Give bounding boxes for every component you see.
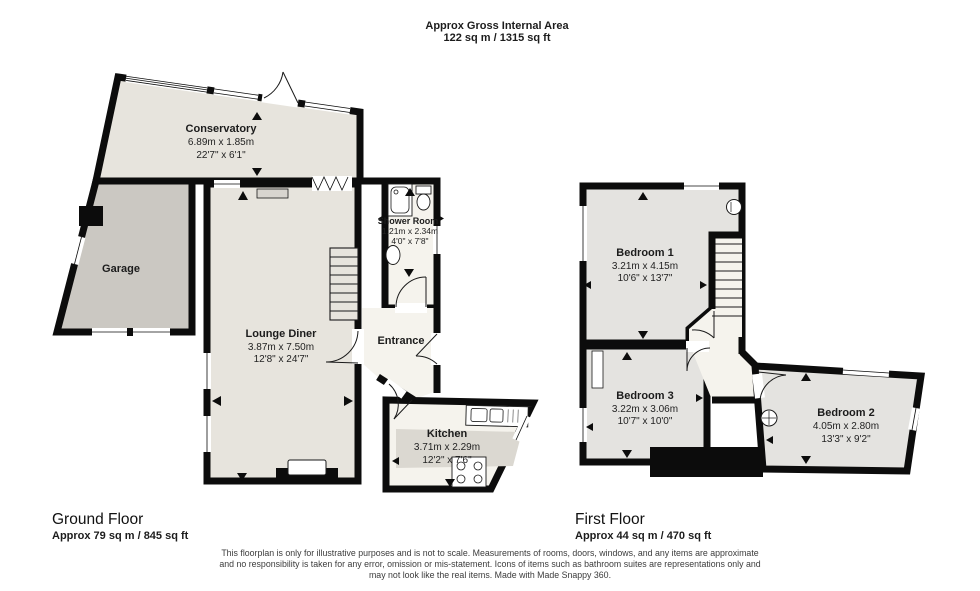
bedroom2-metric: 4.05m x 2.80m bbox=[813, 421, 879, 432]
floorplan-canvas: Conservatory 6.89m x 1.85m 22'7" x 6'1" … bbox=[0, 0, 980, 591]
radiator-icon bbox=[761, 410, 777, 426]
shower-label: Shower Room bbox=[378, 216, 439, 226]
kitchen-label: Kitchen bbox=[427, 428, 468, 440]
first-floor-plan: Bedroom 1 3.21m x 4.15m 10'6" x 13'7" Be… bbox=[583, 186, 921, 477]
dim-arrow-right bbox=[438, 215, 444, 222]
lounge-metric: 3.87m x 7.50m bbox=[248, 342, 314, 353]
kitchen-imperial: 12'2" x 7'6" bbox=[422, 455, 472, 466]
garage-window-bottom bbox=[92, 328, 170, 336]
bedroom2-window-top bbox=[843, 370, 889, 373]
disclaimer-line-2: and no responsibility is taken for any e… bbox=[219, 559, 760, 569]
kitchen-sink-icon bbox=[466, 405, 529, 427]
lounge-opening-zigzag bbox=[312, 176, 352, 191]
bedroom2-window-right bbox=[912, 408, 916, 430]
lounge-label: Lounge Diner bbox=[246, 328, 318, 340]
bedroom1-label: Bedroom 1 bbox=[616, 247, 673, 259]
ground-floor-label: Ground Floor bbox=[52, 511, 143, 528]
bedroom3-label: Bedroom 3 bbox=[616, 390, 673, 402]
bedroom3-metric: 3.22m x 3.06m bbox=[612, 404, 678, 415]
garage-pillar bbox=[79, 206, 103, 226]
lounge-radiator bbox=[257, 189, 288, 198]
ff-stairs bbox=[712, 235, 742, 337]
bedroom1-imperial: 10'6" x 13'7" bbox=[618, 273, 673, 284]
first-floor-area: Approx 44 sq m / 470 sq ft bbox=[575, 530, 712, 542]
entrance-label: Entrance bbox=[377, 335, 424, 347]
page-title: Approx Gross Internal Area bbox=[425, 20, 569, 32]
boiler-icon bbox=[727, 200, 742, 215]
first-floor-label: First Floor bbox=[575, 511, 645, 528]
toilet-icon bbox=[416, 186, 431, 210]
shower-metric: 1.21m x 2.34m bbox=[382, 226, 438, 236]
lounge-stairs bbox=[330, 248, 358, 320]
ground-floor-plan: Conservatory 6.89m x 1.85m 22'7" x 6'1" … bbox=[57, 72, 533, 489]
conservatory-label: Conservatory bbox=[186, 123, 258, 135]
shower-icon bbox=[388, 184, 412, 216]
bedroom2-imperial: 13'3" x 9'2" bbox=[821, 434, 871, 445]
bedroom3-recess bbox=[592, 351, 603, 388]
floorplan-page: Conservatory 6.89m x 1.85m 22'7" x 6'1" … bbox=[0, 0, 980, 591]
ground-floor-area: Approx 79 sq m / 845 sq ft bbox=[52, 530, 189, 542]
conservatory-metric: 6.89m x 1.85m bbox=[188, 137, 254, 148]
garage-label: Garage bbox=[102, 263, 140, 275]
shower-imperial: 4'0" x 7'8" bbox=[391, 236, 428, 246]
bedroom2-label: Bedroom 2 bbox=[817, 407, 874, 419]
disclaimer-line-3: may not look like the real items. Made w… bbox=[369, 570, 611, 580]
disclaimer-line-1: This floorplan is only for illustrative … bbox=[221, 548, 758, 558]
chimney-wall-mass bbox=[650, 447, 763, 477]
kitchen-metric: 3.71m x 2.29m bbox=[414, 442, 480, 453]
sink-icon bbox=[386, 246, 400, 265]
lounge-imperial: 12'8" x 24'7" bbox=[254, 354, 309, 365]
bedroom1-metric: 3.21m x 4.15m bbox=[612, 261, 678, 272]
bedroom3-imperial: 10'7" x 10'0" bbox=[618, 416, 673, 427]
page-subtitle: 122 sq m / 1315 sq ft bbox=[444, 32, 551, 44]
conservatory-imperial: 22'7" x 6'1" bbox=[196, 150, 246, 161]
conservatory-door bbox=[262, 72, 298, 103]
